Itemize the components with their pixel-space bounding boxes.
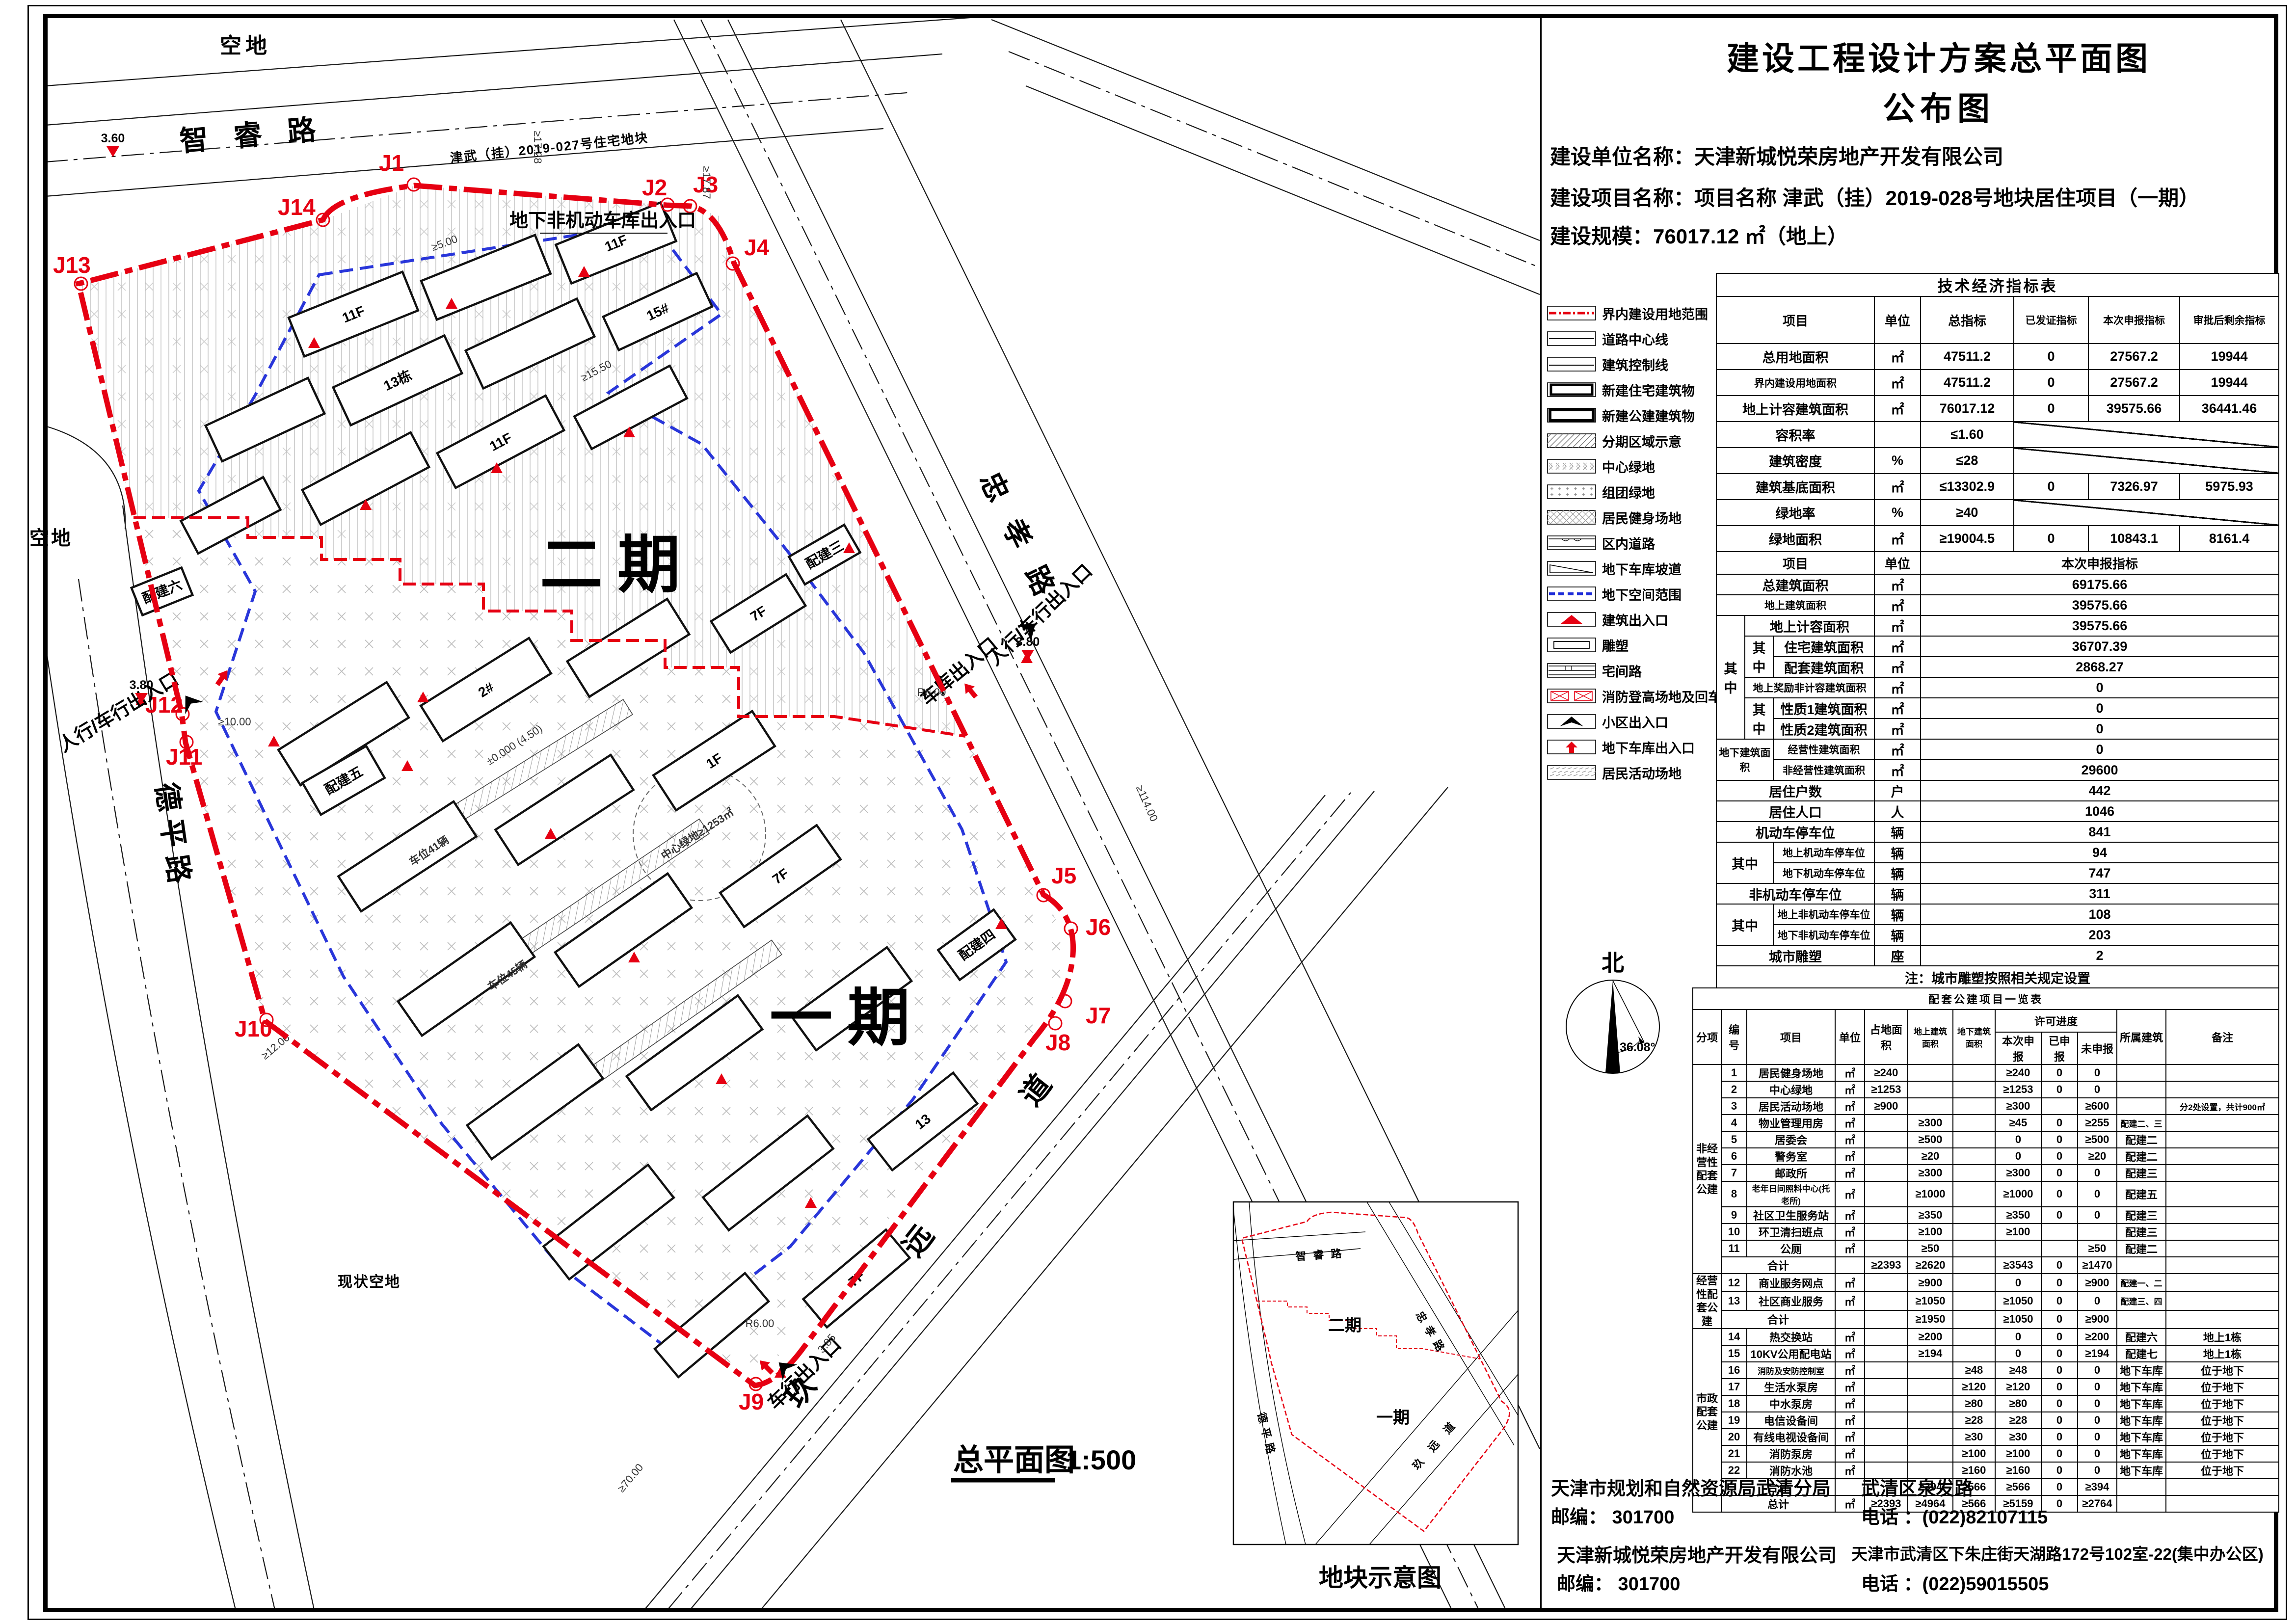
legend-item-label: 小区出入口 xyxy=(1602,712,1668,731)
legend-item: 中心绿地 xyxy=(1547,453,1716,479)
table-cell xyxy=(1874,422,1921,448)
table-cell: 其中 xyxy=(1716,842,1773,883)
legend-item-label: 新建公建建筑物 xyxy=(1602,406,1695,425)
table-cell xyxy=(1865,1131,1908,1148)
table-cell: 0 xyxy=(2041,1065,2078,1081)
table-cell: 地下车库 xyxy=(2117,1412,2166,1429)
table-cell: 其中 xyxy=(1716,615,1745,739)
table-cell: 项目 xyxy=(1747,1010,1835,1065)
table-cell: ≥100 xyxy=(1953,1445,1995,1462)
table-cell: % xyxy=(1874,448,1921,474)
table-cell: 许可进度 xyxy=(1995,1010,2117,1032)
table-cell: 20 xyxy=(1721,1429,1747,1445)
table-cell xyxy=(2041,1098,2078,1115)
table-cell: ≥120 xyxy=(1995,1379,2041,1395)
table-cell: ≥28 xyxy=(1953,1412,1995,1429)
legend-item: 区内道路 xyxy=(1547,530,1716,556)
table-cell: ≥20 xyxy=(1908,1148,1953,1165)
table-cell: 0 xyxy=(2078,1412,2117,1429)
legend-item-label: 地下空间范围 xyxy=(1602,585,1682,604)
table-cell: 76017.12 xyxy=(1921,396,2014,422)
table-cell: ㎡ xyxy=(1835,1495,1865,1512)
table-cell: ㎡ xyxy=(1835,1462,1865,1479)
table-cell: 有线电视设备间 xyxy=(1747,1429,1835,1445)
legend-item-label: 雕塑 xyxy=(1602,636,1629,655)
table-cell: 地下建筑面积 xyxy=(1716,739,1773,780)
table-cell xyxy=(1865,1207,1908,1224)
table-cell: ≥2764 xyxy=(2078,1495,2117,1512)
table-cell: ㎡ xyxy=(1874,698,1921,719)
table-cell: ≥30 xyxy=(1995,1429,2041,1445)
table-cell: ≤1.60 xyxy=(1921,422,2014,448)
table-cell xyxy=(1995,1240,2041,1257)
table-cell: 社区卫生服务站 xyxy=(1747,1207,1835,1224)
table-cell: 21 xyxy=(1721,1445,1747,1462)
table-cell xyxy=(1953,1148,1995,1165)
table-cell: 39575.66 xyxy=(2088,396,2180,422)
table-cell: 47511.2 xyxy=(1921,344,2014,370)
fitness-icon xyxy=(1547,510,1596,525)
table-cell: 位于地下 xyxy=(2166,1379,2279,1395)
table-cell: 39575.66 xyxy=(1921,595,2279,615)
table-cell: 消防及安防控制室 xyxy=(1747,1362,1835,1379)
table-cell: 建筑密度 xyxy=(1716,448,1874,474)
table-cell: ≥300 xyxy=(1908,1115,1953,1131)
table-cell: 配建五 xyxy=(2117,1181,2166,1207)
table-cell: 27567.2 xyxy=(2088,344,2180,370)
table-cell: 合计 xyxy=(1721,1310,1835,1329)
table-cell: ≥300 xyxy=(1908,1165,1953,1181)
table-cell xyxy=(1865,1362,1908,1379)
table-cell xyxy=(2166,1310,2279,1329)
table-cell: 绿地面积 xyxy=(1716,526,1874,552)
table-cell xyxy=(2166,1065,2279,1081)
panel-divider xyxy=(1540,14,1542,1612)
table-cell xyxy=(1865,1395,1908,1412)
lane-icon xyxy=(1547,663,1596,678)
legend-item: 建筑控制线 xyxy=(1547,351,1716,377)
table-cell: 7 xyxy=(1721,1165,1747,1181)
table-cell: 5975.93 xyxy=(2180,474,2279,500)
table-cell: 配建三、四 xyxy=(2117,1292,2166,1310)
table-cell: 0 xyxy=(2041,1081,2078,1098)
table-cell: 未申报 xyxy=(2078,1032,2117,1065)
table-cell: 203 xyxy=(1921,925,2279,945)
table-cell xyxy=(2117,1257,2166,1274)
table-cell: 0 xyxy=(2014,474,2088,500)
legend-item: 地下车库出入口 xyxy=(1547,734,1716,760)
table-cell: 12 xyxy=(1721,1274,1747,1292)
table-cell: 单位 xyxy=(1874,296,1921,344)
table-cell: ㎡ xyxy=(1835,1081,1865,1098)
table-cell: ㎡ xyxy=(1835,1379,1865,1395)
sheet-title: 建设工程设计方案总平面图 xyxy=(1595,32,2282,80)
table-cell: ㎡ xyxy=(1835,1395,1865,1412)
legend-item: 地下空间范围 xyxy=(1547,581,1716,607)
table-cell: ≥1950 xyxy=(1908,1310,1953,1329)
table-cell xyxy=(1865,1310,1908,1329)
table-cell: ㎡ xyxy=(1874,677,1921,698)
table-cell: 0 xyxy=(2041,1207,2078,1224)
road-inner-icon xyxy=(1547,535,1596,550)
table-cell: 物业管理用房 xyxy=(1747,1115,1835,1131)
table-cell: 0 xyxy=(2014,370,2088,396)
table-cell: 地上建筑面积 xyxy=(1716,595,1874,615)
table-cell: ㎡ xyxy=(1835,1292,1865,1310)
sculpture-icon xyxy=(1547,638,1596,652)
table-cell: 0 xyxy=(1995,1131,2041,1148)
table-cell xyxy=(2117,1081,2166,1098)
table-cell xyxy=(1908,1081,1953,1098)
table-cell: 项目 xyxy=(1716,296,1874,344)
table-cell xyxy=(1953,1292,1995,1310)
table-cell xyxy=(1953,1065,1995,1081)
table-cell xyxy=(1865,1165,1908,1181)
table-cell: 0 xyxy=(2014,526,2088,552)
table-cell: 0 xyxy=(2041,1257,2078,1274)
table-cell: 36441.46 xyxy=(2180,396,2279,422)
table-cell: 住宅建筑面积 xyxy=(1773,636,1874,657)
table-cell: ㎡ xyxy=(1874,636,1921,657)
table-cell: 0 xyxy=(2078,1379,2117,1395)
table-cell: ≤28 xyxy=(1921,448,2014,474)
table-cell: 2 xyxy=(1921,945,2279,966)
green-group-icon xyxy=(1547,484,1596,499)
table-cell: 地下车库 xyxy=(2117,1362,2166,1379)
table-cell: 位于地下 xyxy=(2166,1445,2279,1462)
table-cell: 非经营性配套公建 xyxy=(1693,1065,1721,1274)
table-cell: 配建七 xyxy=(2117,1345,2166,1362)
table-cell: ≥1050 xyxy=(1908,1292,1953,1310)
table-cell: 配建三 xyxy=(2117,1165,2166,1181)
legend-item: 新建公建建筑物 xyxy=(1547,402,1716,428)
table-cell: 2868.27 xyxy=(1921,657,2279,677)
table-cell: ≥80 xyxy=(1995,1395,2041,1412)
table-cell: 7326.97 xyxy=(2088,474,2180,500)
table-cell: 辆 xyxy=(1874,883,1921,904)
authority-phone: 电话 ：(022)82107115 xyxy=(1861,1502,2048,1529)
table-cell: ≥2393 xyxy=(1865,1257,1908,1274)
table-cell: 注：城市雕塑按照相关规定设置 xyxy=(1716,966,2279,988)
table-cell: 1 xyxy=(1721,1065,1747,1081)
table-cell: 0 xyxy=(2078,1362,2117,1379)
table-cell: ≥28 xyxy=(1995,1412,2041,1429)
table-cell: 地上非机动车停车位 xyxy=(1773,904,1874,925)
table-cell: ≥300 xyxy=(1995,1098,2041,1115)
legend-item-label: 道路中心线 xyxy=(1602,329,1668,348)
table-cell: ≥300 xyxy=(1995,1165,2041,1181)
table-cell: 311 xyxy=(1921,883,2279,904)
table-cell: ㎡ xyxy=(1874,526,1921,552)
table-cell: 性质1建筑面积 xyxy=(1773,698,1874,719)
table-cell: ≥900 xyxy=(2078,1310,2117,1329)
table-cell: 总用地面积 xyxy=(1716,344,1874,370)
table-cell xyxy=(2166,1115,2279,1131)
table-cell: ≥50 xyxy=(1908,1240,1953,1257)
table-cell xyxy=(1953,1165,1995,1181)
table-cell xyxy=(1953,1310,1995,1329)
table-cell: 36707.39 xyxy=(1921,636,2279,657)
table-cell: ≥240 xyxy=(1865,1065,1908,1081)
table-cell xyxy=(2117,1065,2166,1081)
table-cell: ≥3543 xyxy=(1995,1257,2041,1274)
table-cell: 地下建筑面积 xyxy=(1953,1010,1995,1065)
table-cell: ≥30 xyxy=(1953,1429,1995,1445)
table-cell: ≥45 xyxy=(1995,1115,2041,1131)
table-cell xyxy=(2166,1148,2279,1165)
table-cell: ≥80 xyxy=(1953,1395,1995,1412)
table-cell: 地下车库 xyxy=(2117,1429,2166,1445)
table-cell xyxy=(1953,1181,1995,1207)
table-cell xyxy=(1865,1429,1908,1445)
table-cell: 非经营性建筑面积 xyxy=(1773,760,1874,780)
table-cell: ㎡ xyxy=(1874,595,1921,615)
table-cell: ≥200 xyxy=(1908,1329,1953,1345)
table-cell: 单位 xyxy=(1874,552,1921,574)
table-cell: 16 xyxy=(1721,1362,1747,1379)
table-cell: 0 xyxy=(2041,1115,2078,1131)
table-cell: 辆 xyxy=(1874,904,1921,925)
table-cell: 机动车停车位 xyxy=(1716,822,1874,842)
table-cell xyxy=(1953,1329,1995,1345)
table-cell xyxy=(1953,1131,1995,1148)
table-cell: 邮政所 xyxy=(1747,1165,1835,1181)
table-cell: ㎡ xyxy=(1835,1115,1865,1131)
table-cell: 0 xyxy=(2041,1395,2078,1412)
table-cell: 0 xyxy=(2041,1445,2078,1462)
legend-item-label: 分期区域示意 xyxy=(1602,431,1682,451)
table-cell: 配建三 xyxy=(2117,1224,2166,1240)
table-cell xyxy=(1865,1412,1908,1429)
table-cell xyxy=(1865,1181,1908,1207)
table-cell: 配建二 xyxy=(2117,1148,2166,1165)
legend-item-label: 地下车库出入口 xyxy=(1602,738,1695,757)
table-cell xyxy=(1835,1310,1865,1329)
table-cell: ㎡ xyxy=(1874,574,1921,595)
table-cell: 已发证指标 xyxy=(2014,296,2088,344)
legend-item: 地下车库坡道 xyxy=(1547,556,1716,581)
table-cell: ≥500 xyxy=(2078,1131,2117,1148)
table-cell: 合计 xyxy=(1721,1257,1835,1274)
table-cell: 界内建设用地面积 xyxy=(1716,370,1874,396)
table-cell: 地上1栋 xyxy=(2166,1329,2279,1345)
table-cell: 0 xyxy=(2041,1148,2078,1165)
table-cell: 27567.2 xyxy=(2088,370,2180,396)
table-cell: ≥48 xyxy=(1995,1362,2041,1379)
table-cell: 配建六 xyxy=(2117,1329,2166,1345)
table-cell: 0 xyxy=(2078,1445,2117,1462)
developer-name: 天津新城悦荣房地产开发有限公司 xyxy=(1557,1540,1837,1567)
authority-address: 武清区泉发路 xyxy=(1861,1473,1973,1500)
table-cell: ㎡ xyxy=(1874,615,1921,636)
table-cell: 0 xyxy=(1995,1274,2041,1292)
table-cell: 配建二 xyxy=(2117,1240,2166,1257)
table-cell: 0 xyxy=(2041,1274,2078,1292)
table-cell xyxy=(1908,1098,1953,1115)
table-cell: ≥120 xyxy=(1953,1379,1995,1395)
table-cell: 19 xyxy=(1721,1412,1747,1429)
table-cell: 108 xyxy=(1921,904,2279,925)
table-cell: 8 xyxy=(1721,1181,1747,1207)
table-cell xyxy=(2041,1224,2078,1240)
table-cell: 8161.4 xyxy=(2180,526,2279,552)
table-cell: ≤13302.9 xyxy=(1921,474,2014,500)
table-cell: 位于地下 xyxy=(2166,1412,2279,1429)
table-cell: 所属建筑 xyxy=(2117,1010,2166,1065)
table-cell xyxy=(2078,1224,2117,1240)
table-cell: 已申报 xyxy=(2041,1032,2078,1065)
activity-icon xyxy=(1547,765,1596,780)
table-cell: 0 xyxy=(1995,1148,2041,1165)
table-cell: 总指标 xyxy=(1921,296,2014,344)
table-cell xyxy=(2166,1479,2279,1495)
table-cell: ㎡ xyxy=(1874,370,1921,396)
red-arrow-icon xyxy=(1547,740,1596,754)
table-cell: 生活水泵房 xyxy=(1747,1379,1835,1395)
table-cell xyxy=(1865,1329,1908,1345)
legend-item-label: 消防登高场地及回车场 xyxy=(1602,687,1735,706)
table-cell xyxy=(1908,1362,1953,1379)
table-cell: 商业服务网点 xyxy=(1747,1274,1835,1292)
table-cell: 0 xyxy=(2078,1395,2117,1412)
table-cell: ≥200 xyxy=(2078,1329,2117,1345)
table-cell: ㎡ xyxy=(1835,1131,1865,1148)
table-cell xyxy=(2117,1495,2166,1512)
table-cell: ㎡ xyxy=(1835,1098,1865,1115)
table-cell: 0 xyxy=(2078,1462,2117,1479)
table-cell xyxy=(2117,1479,2166,1495)
table-cell: 中心绿地 xyxy=(1747,1081,1835,1098)
table-cell: 0 xyxy=(2041,1310,2078,1329)
legend-item-label: 居民活动场地 xyxy=(1602,763,1682,782)
table-cell: 位于地下 xyxy=(2166,1429,2279,1445)
table-cell: 居住户数 xyxy=(1716,780,1874,801)
table-cell xyxy=(1908,1065,1953,1081)
table-cell: 配套建筑面积 xyxy=(1773,657,1874,677)
builder-name-line: 建设单位名称：天津新城悦荣房地产开发有限公司 xyxy=(1550,140,2276,170)
table-cell: ≥194 xyxy=(2078,1345,2117,1362)
table-cell: 地上建筑面积 xyxy=(1908,1010,1953,1065)
table-cell: ㎡ xyxy=(1874,396,1921,422)
table-cell: % xyxy=(1874,500,1921,526)
table-cell: 29600 xyxy=(1921,760,2279,780)
table-cell xyxy=(1953,1098,1995,1115)
table-cell: 配套公建项目一览表 xyxy=(1693,988,2279,1010)
table-cell: 辆 xyxy=(1874,822,1921,842)
table-cell: 0 xyxy=(2014,344,2088,370)
table-cell: 其中 xyxy=(1716,904,1773,945)
table-cell: ≥100 xyxy=(1995,1445,2041,1462)
table-cell: 地下车库 xyxy=(2117,1462,2166,1479)
legend-item: 宅间路 xyxy=(1547,658,1716,683)
table-cell: 10 xyxy=(1721,1224,1747,1240)
table-cell: ≥194 xyxy=(1908,1345,1953,1362)
table-cell xyxy=(1865,1445,1908,1462)
table-cell: 辆 xyxy=(1874,863,1921,883)
table-cell xyxy=(2117,1310,2166,1329)
table-cell: ≥566 xyxy=(1995,1479,2041,1495)
table-cell: 分2处设置，共计900㎡ xyxy=(2166,1098,2279,1115)
table-cell: 经营性建筑面积 xyxy=(1773,739,1874,760)
table-cell: ㎡ xyxy=(1835,1445,1865,1462)
table-cell: 绿地率 xyxy=(1716,500,1874,526)
table-cell: 分项 xyxy=(1693,1010,1721,1065)
table-cell: 0 xyxy=(1995,1329,2041,1345)
legend-item: 界内建设用地范围 xyxy=(1547,300,1716,326)
table-cell xyxy=(2166,1131,2279,1148)
table-cell: 性质2建筑面积 xyxy=(1773,719,1874,739)
table-cell: 10KV公用配电站 xyxy=(1747,1345,1835,1362)
table-cell: ≥48 xyxy=(1953,1362,1995,1379)
table-cell: ㎡ xyxy=(1874,719,1921,739)
table-cell: ≥1050 xyxy=(1995,1292,2041,1310)
table-cell: 5 xyxy=(1721,1131,1747,1148)
table-cell: 居民健身场地 xyxy=(1747,1065,1835,1081)
table-cell: 地上计容建筑面积 xyxy=(1716,396,1874,422)
table-cell xyxy=(2041,1240,2078,1257)
table-cell: 0 xyxy=(2078,1292,2117,1310)
developer-zip: 邮编： 301700 xyxy=(1557,1569,1680,1596)
table-cell: 11 xyxy=(1721,1240,1747,1257)
table-cell: ㎡ xyxy=(1874,760,1921,780)
table-cell: ≥900 xyxy=(1908,1274,1953,1292)
table-cell xyxy=(2166,1165,2279,1181)
table-cell: ㎡ xyxy=(1874,739,1921,760)
legend-item-label: 地下车库坡道 xyxy=(1602,559,1682,578)
legend-item-label: 界内建设用地范围 xyxy=(1602,304,1708,323)
legend-item: 建筑出入口 xyxy=(1547,607,1716,632)
public-facilities-table: 配套公建项目一览表分项编号项目单位占地面积地上建筑面积地下建筑面积许可进度所属建… xyxy=(1692,987,2279,1513)
table-cell: 公厕 xyxy=(1747,1240,1835,1257)
table-cell: 配建三 xyxy=(2117,1207,2166,1224)
table-cell: 19944 xyxy=(2180,370,2279,396)
black-arrow-icon xyxy=(1547,714,1596,729)
table-cell: 其中 xyxy=(1745,698,1773,739)
table-cell: ≥350 xyxy=(1995,1207,2041,1224)
table-cell: 社区商业服务 xyxy=(1747,1292,1835,1310)
controlline-icon xyxy=(1547,357,1596,372)
table-cell: 3 xyxy=(1721,1098,1747,1115)
table-cell: ≥1253 xyxy=(1995,1081,2041,1098)
table-cell: 0 xyxy=(2041,1181,2078,1207)
table-cell: ㎡ xyxy=(1835,1165,1865,1181)
table-cell xyxy=(1865,1240,1908,1257)
table-cell: ㎡ xyxy=(1835,1224,1865,1240)
table-cell: 地下车库 xyxy=(2117,1395,2166,1412)
table-cell: 15 xyxy=(1721,1345,1747,1362)
table-cell xyxy=(1908,1445,1953,1462)
table-cell: 0 xyxy=(2078,1429,2117,1445)
table-cell: ㎡ xyxy=(1835,1329,1865,1345)
table-cell: 配建一、二 xyxy=(2117,1274,2166,1292)
table-cell: 本次申报指标 xyxy=(2088,296,2180,344)
table-cell: 0 xyxy=(2078,1081,2117,1098)
legend: 界内建设用地范围道路中心线建筑控制线新建住宅建筑物新建公建建筑物分期区域示意中心… xyxy=(1547,300,1716,785)
table-cell: ㎡ xyxy=(1835,1429,1865,1445)
legend-item: 组团绿地 xyxy=(1547,479,1716,505)
table-cell: 0 xyxy=(2041,1379,2078,1395)
table-cell: 建筑基底面积 xyxy=(1716,474,1874,500)
table-cell xyxy=(1953,1081,1995,1098)
drawing-sheet: 11F11F13栋15#11F2#7F1F7F137F配建三配建四配建五配建六智… xyxy=(0,0,2296,1624)
table-cell: 0 xyxy=(2078,1181,2117,1207)
blue-dash-icon xyxy=(1547,586,1596,601)
table-cell: 0 xyxy=(2078,1065,2117,1081)
table-cell: 老年日间照料中心(托老所) xyxy=(1747,1181,1835,1207)
table-cell: 0 xyxy=(2041,1429,2078,1445)
table-cell: ≥40 xyxy=(1921,500,2014,526)
table-cell: 841 xyxy=(1921,822,2279,842)
